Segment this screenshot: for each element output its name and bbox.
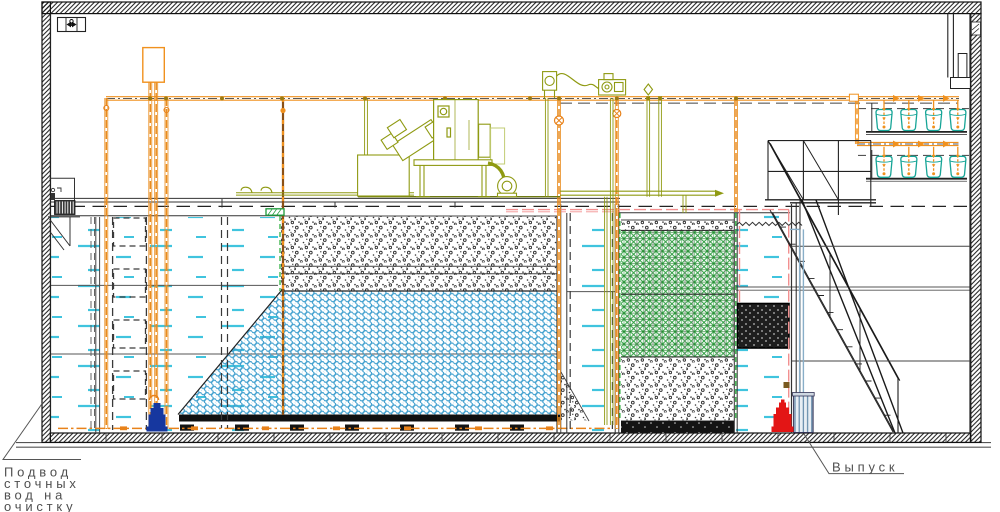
svg-text:Выпуск: Выпуск xyxy=(832,460,898,475)
svg-text:очистку: очистку xyxy=(4,499,76,512)
